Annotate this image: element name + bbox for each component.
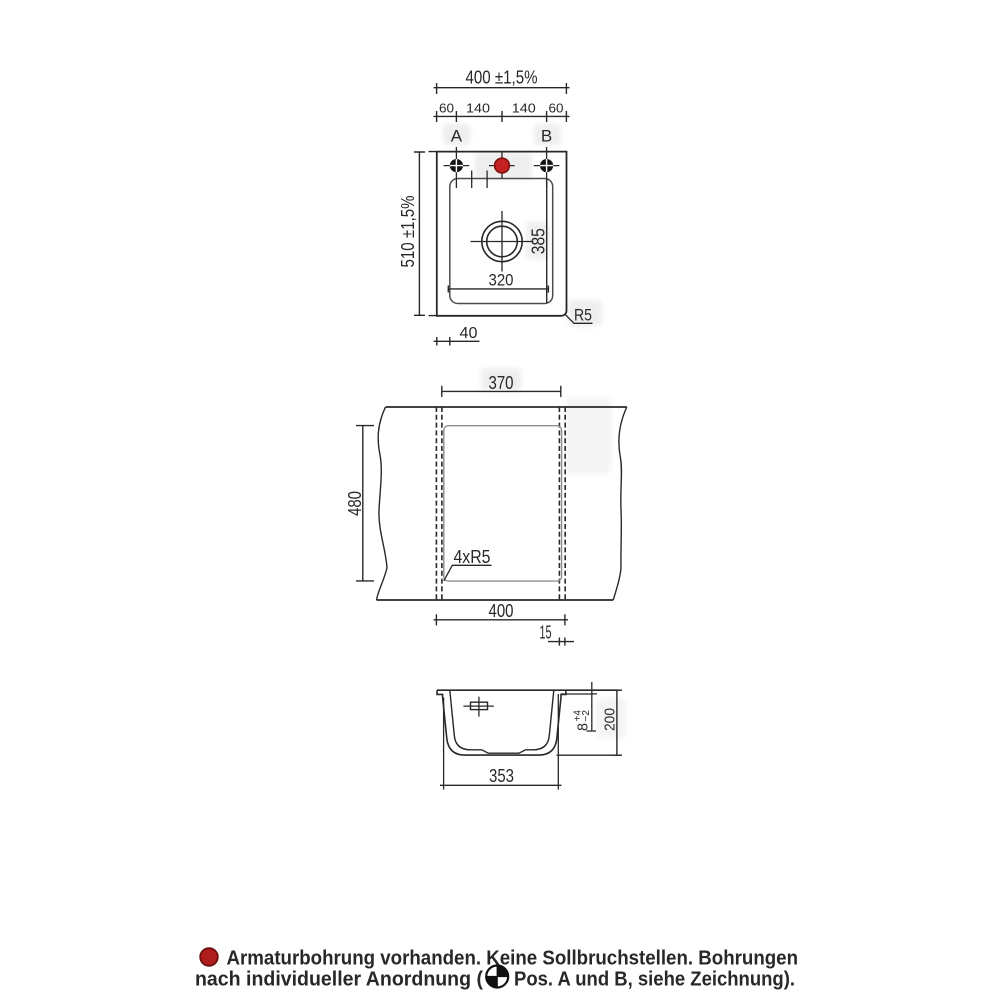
svg-text:4xR5: 4xR5 bbox=[454, 547, 491, 567]
svg-text:Armaturbohrung vorhanden. Kein: Armaturbohrung vorhanden. Keine Sollbruc… bbox=[227, 948, 799, 970]
svg-text:200: 200 bbox=[601, 708, 618, 731]
svg-text:60: 60 bbox=[439, 100, 454, 115]
svg-text:B: B bbox=[541, 127, 552, 146]
svg-text:400 ±1,5%: 400 ±1,5% bbox=[466, 68, 538, 88]
svg-text:R5: R5 bbox=[574, 306, 592, 325]
svg-text:−2: −2 bbox=[581, 710, 592, 722]
svg-text:60: 60 bbox=[549, 100, 564, 115]
svg-text:nach individueller Anordnung (: nach individueller Anordnung ( bbox=[195, 969, 483, 991]
svg-text:320: 320 bbox=[489, 270, 514, 289]
svg-text:400: 400 bbox=[489, 601, 514, 621]
svg-text:40: 40 bbox=[460, 325, 478, 342]
svg-text:353: 353 bbox=[489, 766, 514, 786]
svg-text:15: 15 bbox=[540, 623, 552, 643]
svg-text:140: 140 bbox=[466, 100, 490, 115]
svg-text:370: 370 bbox=[489, 373, 514, 393]
svg-text:Pos. A und B, siehe Zeichnung): Pos. A und B, siehe Zeichnung). bbox=[514, 969, 795, 991]
svg-text:510 ±1,5%: 510 ±1,5% bbox=[398, 196, 418, 268]
svg-text:8: 8 bbox=[575, 723, 592, 731]
svg-text:A: A bbox=[451, 127, 463, 146]
svg-text:385: 385 bbox=[529, 228, 549, 254]
svg-text:140: 140 bbox=[512, 100, 536, 115]
svg-text:480: 480 bbox=[345, 491, 365, 516]
